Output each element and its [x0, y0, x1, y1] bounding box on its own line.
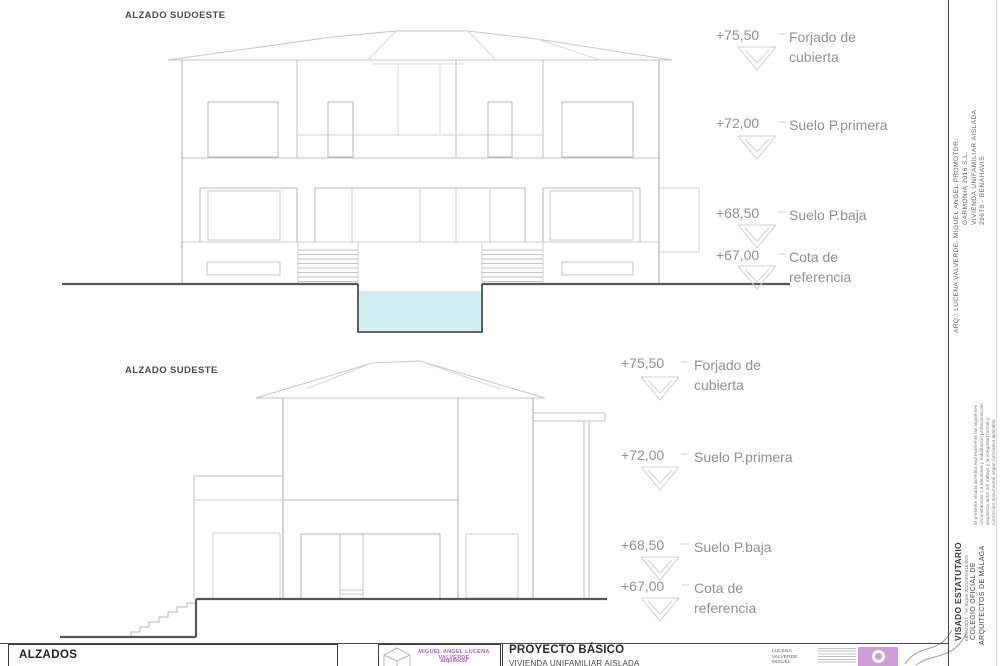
sheet-border-right — [948, 0, 949, 666]
level-label-line: Forjado de — [789, 29, 856, 45]
stamp-architect-role: arquitecto — [411, 658, 497, 664]
signer-line: LUCENA — [772, 648, 792, 653]
margin-promoter-line: VIVIENDA UNIFAMILIAR AISLADA — [971, 109, 980, 225]
sheet-edge — [996, 0, 997, 666]
level-label-line: Cota de — [694, 580, 743, 596]
digital-signature-fineprint — [818, 648, 856, 664]
level-label-line: Suelo P.primera — [694, 449, 793, 465]
coa-malaga-logo — [858, 647, 898, 666]
ground-line — [60, 599, 607, 637]
level-label-line: Suelo P.primera — [789, 117, 888, 133]
level-label-line: Suelo P.baja — [789, 207, 867, 223]
level-value: +67,00 — [716, 247, 778, 263]
visado-title: VISADO ESTATUTARIO — [953, 542, 963, 641]
level-label-line: referencia — [789, 269, 851, 285]
visado-expediente: 08/06/2021 - Nº Expte 2021/001610/002 — [964, 555, 969, 641]
level-value: +75,50 — [716, 27, 778, 43]
level-value: +67,00 — [621, 578, 683, 594]
level-label-line: Suelo P.baja — [694, 539, 772, 555]
level-label-line: cubierta — [694, 377, 744, 393]
titleblock-sheet-title-box: ALZADOS — [8, 644, 338, 666]
titleblock-divider — [502, 643, 503, 666]
level-label: Suelo P.baja — [789, 205, 867, 225]
level-label: Cota dereferencia — [694, 578, 756, 618]
level-label-line: Forjado de — [694, 357, 761, 373]
margin-promoter-line: GARMONIA 2016 S.L. — [962, 109, 971, 225]
architect-stamp-logo-icon — [382, 647, 412, 666]
signer-line: VALVERDE — [772, 654, 797, 659]
level-label-line: referencia — [694, 600, 756, 616]
visado-fineprint: El presente visado acredita expresamente… — [973, 403, 997, 525]
level-value: +68,50 — [716, 205, 778, 221]
level-label: Suelo P.primera — [789, 115, 888, 135]
level-value: +68,50 — [621, 537, 683, 553]
elevation-se-title: ALZADO SUDESTE — [125, 365, 218, 376]
plan-sheet: ALZADO SUDOESTE ALZADO SUDESTE +75,50 Fo… — [0, 0, 1000, 666]
level-label: Cota dereferencia — [789, 247, 851, 287]
project-type: PROYECTO BÁSICO — [509, 644, 624, 656]
project-name: VIVIENDA UNIFAMILIAR AISLADA — [509, 659, 640, 666]
pool — [358, 284, 482, 332]
visado-org-line1: COLEGIO OFICIAL DE — [970, 562, 977, 640]
level-value: +72,00 — [716, 115, 778, 131]
signer-line: MIGUEL — [772, 659, 791, 664]
level-label-line: cubierta — [789, 49, 839, 65]
elevation-sw-title: ALZADO SUDOESTE — [125, 10, 225, 21]
visado-fineprint-line: corrección documental según normativa ap… — [991, 403, 997, 525]
elevations-linework — [0, 0, 1000, 666]
margin-promoter-block: GARMONIA 2016 S.L. VIVIENDA UNIFAMILIAR … — [962, 109, 988, 225]
level-label: Suelo P.primera — [694, 447, 793, 467]
digital-signer-name: LUCENA VALVERDE MIGUEL — [772, 648, 797, 665]
logo-ring-icon — [872, 650, 885, 663]
level-label: Suelo P.baja — [694, 537, 772, 557]
sheet-title: ALZADOS — [19, 649, 77, 661]
level-label-line: Cota de — [789, 249, 838, 265]
architect-stamp-box: MIGUEL ANGEL LUCENA VALVERDE arquitecto — [378, 644, 501, 666]
visado-org-line2: ARQUITECTOS DE MÁLAGA — [979, 545, 986, 645]
elevation-sw-drawing — [62, 31, 790, 332]
margin-architect-line: ARQ.: LUCENA VALVERDE, MIGUEL ANGEL PROM… — [953, 138, 960, 333]
level-label: Forjado decubierta — [789, 27, 856, 67]
level-label: Forjado decubierta — [694, 355, 761, 395]
elevation-se-drawing — [60, 361, 607, 637]
level-value: +75,50 — [621, 355, 683, 371]
margin-promoter-line: 29679 - BENAHAVIS — [979, 109, 988, 225]
level-value: +72,00 — [621, 447, 683, 463]
